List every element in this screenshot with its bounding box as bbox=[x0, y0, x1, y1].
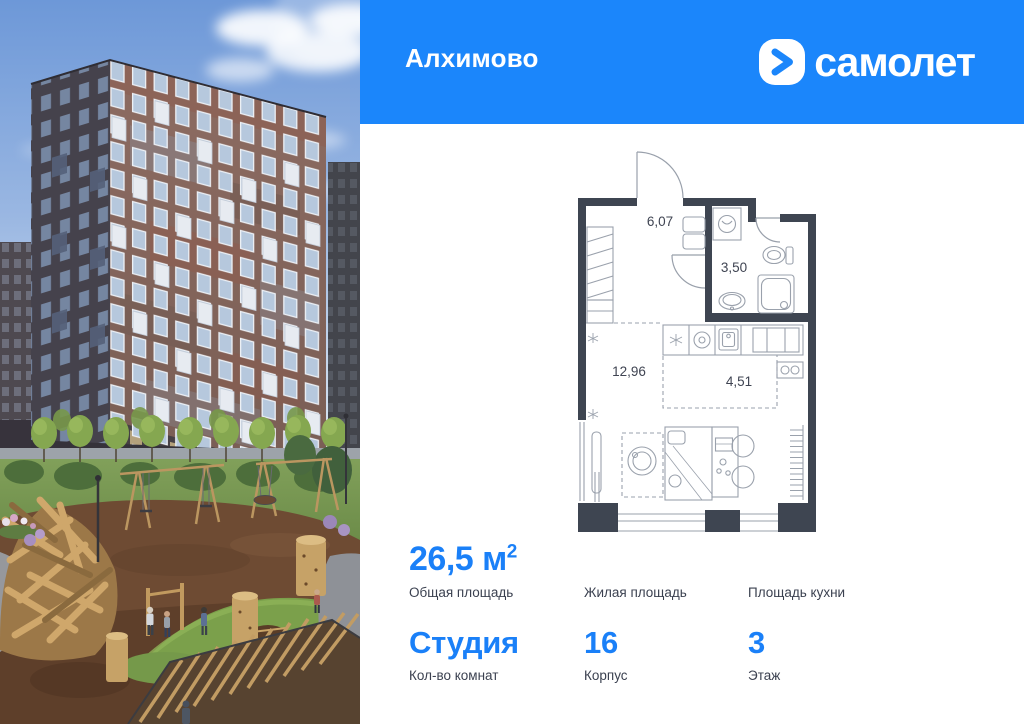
project-title: Алхимово bbox=[405, 44, 539, 72]
living-area-label: Жилая площадь bbox=[584, 585, 687, 600]
total-area-value: 26,5 м2 bbox=[409, 541, 517, 577]
room-label-living: 12,96 bbox=[612, 364, 646, 379]
rooms-label: Кол-во комнат bbox=[409, 668, 519, 683]
building-value: 16 bbox=[584, 626, 628, 660]
floor-label: Этаж bbox=[748, 668, 780, 683]
header-banner: Алхимово самолет bbox=[360, 0, 1024, 124]
room-label-bathroom: 3,50 bbox=[721, 260, 747, 275]
detail-living-area: Жилая площадь bbox=[584, 585, 687, 600]
detail-building: 16 Корпус bbox=[584, 626, 628, 683]
floor-plan: 6,07 3,50 12,96 4,51 bbox=[576, 150, 822, 538]
kitchen-area-label: Площадь кухни bbox=[748, 585, 845, 600]
brand-name: самолет bbox=[814, 39, 975, 85]
detail-floor: 3 Этаж bbox=[748, 626, 780, 683]
building-photo bbox=[0, 0, 360, 724]
room-label-kitchen: 4,51 bbox=[726, 374, 752, 389]
floor-value: 3 bbox=[748, 626, 780, 660]
rooms-value: Студия bbox=[409, 626, 519, 660]
listing-card: Алхимово самолет bbox=[0, 0, 1024, 724]
brand-logo: самолет bbox=[759, 39, 975, 85]
total-area-label: Общая площадь bbox=[409, 585, 517, 600]
samolet-chevron-icon bbox=[759, 39, 805, 85]
room-label-hallway: 6,07 bbox=[647, 214, 673, 229]
building-label: Корпус bbox=[584, 668, 628, 683]
detail-rooms: Студия Кол-во комнат bbox=[409, 626, 519, 683]
plan-fixtures bbox=[586, 208, 803, 502]
detail-total-area: 26,5 м2 Общая площадь bbox=[409, 541, 517, 600]
detail-kitchen-area: Площадь кухни bbox=[748, 585, 845, 600]
total-area-sup: 2 bbox=[507, 542, 517, 563]
